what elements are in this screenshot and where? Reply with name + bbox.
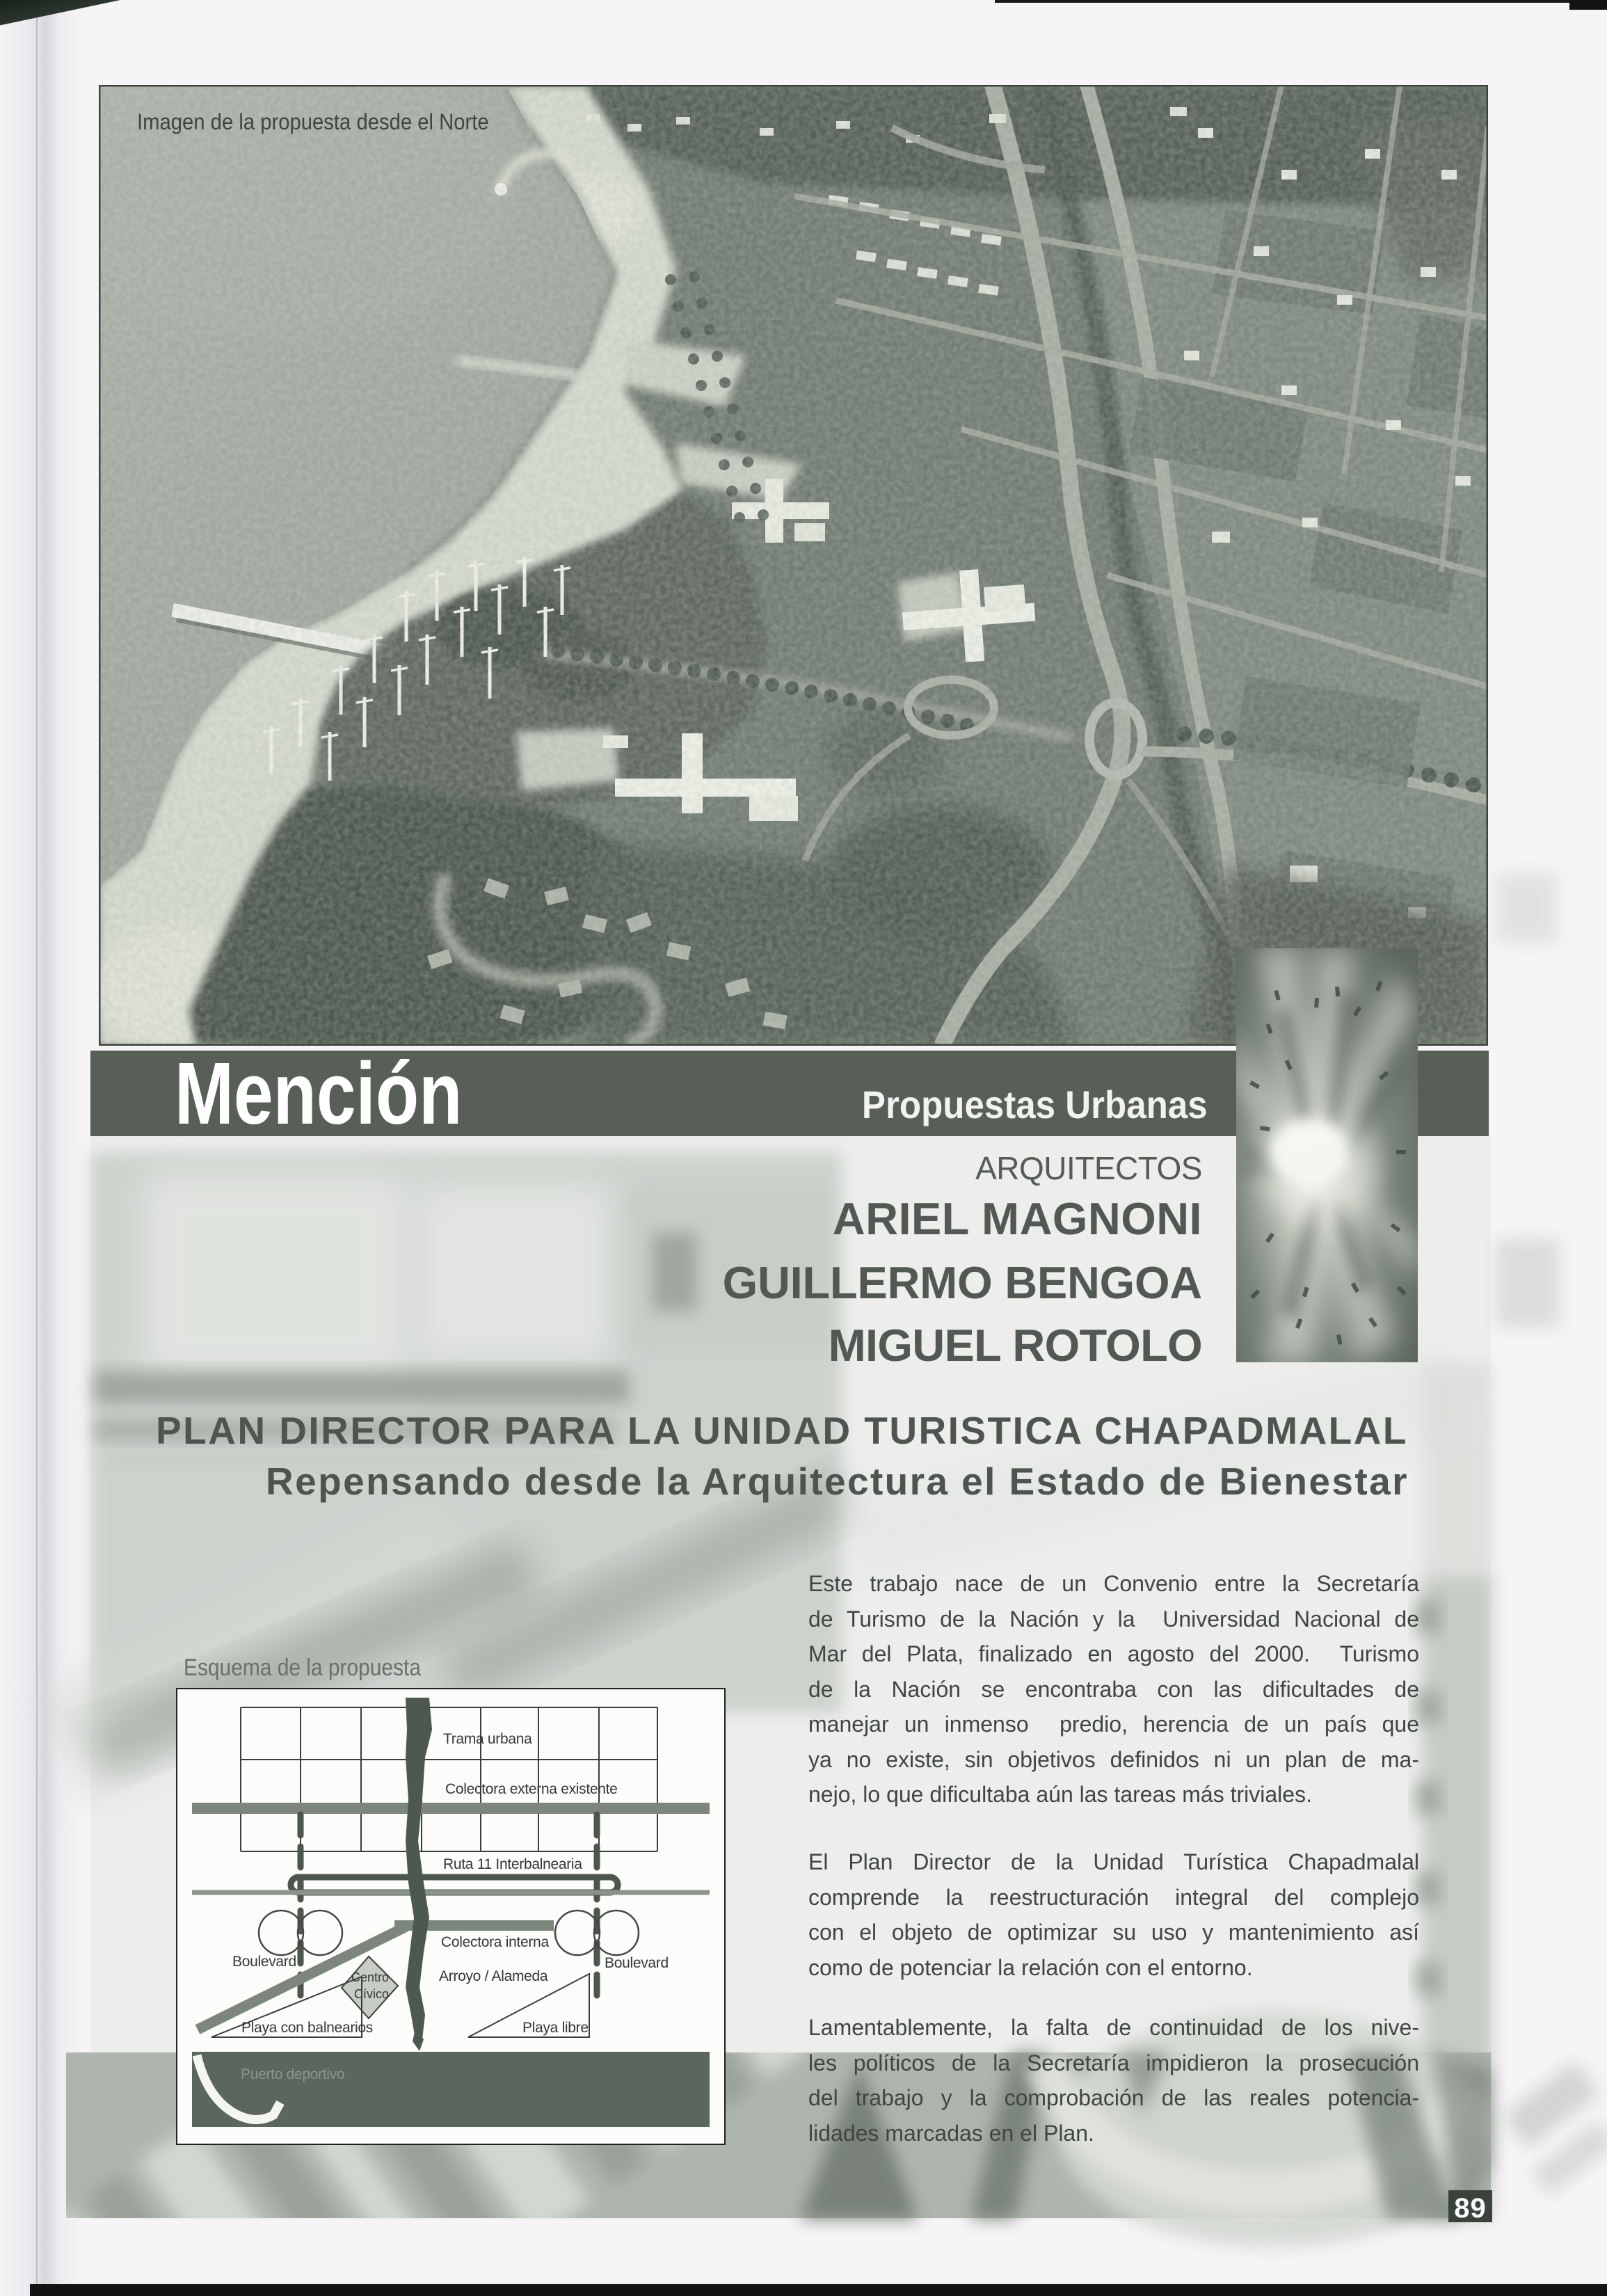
svg-text:Colectora externa existente: Colectora externa existente xyxy=(445,1781,618,1797)
svg-text:Ruta 11 Interbalnearia: Ruta 11 Interbalnearia xyxy=(443,1856,582,1872)
svg-text:Playa libre: Playa libre xyxy=(522,2020,589,2036)
svg-text:Colectora interna: Colectora interna xyxy=(441,1934,549,1950)
svg-text:Arroyo / Alameda: Arroyo / Alameda xyxy=(439,1968,548,1984)
svg-text:Cívico: Cívico xyxy=(354,1987,389,2001)
svg-text:Trama urbana: Trama urbana xyxy=(443,1731,532,1747)
svg-text:Centro: Centro xyxy=(351,1970,389,1984)
svg-text:Boulevard: Boulevard xyxy=(605,1955,669,1971)
svg-text:Boulevard: Boulevard xyxy=(232,1954,296,1970)
svg-text:Puerto deportivo: Puerto deportivo xyxy=(241,2066,344,2082)
svg-text:Playa con balnearios: Playa con balnearios xyxy=(241,2020,373,2036)
